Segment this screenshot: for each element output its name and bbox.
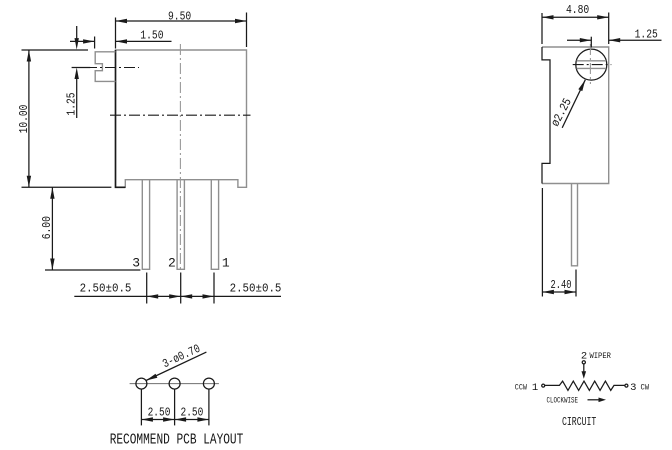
svg-text:2.50±0.5: 2.50±0.5 <box>80 281 132 295</box>
svg-text:10.00: 10.00 <box>17 105 31 134</box>
svg-text:CLOCKWISE: CLOCKWISE <box>547 396 579 406</box>
svg-text:4.80: 4.80 <box>566 3 589 17</box>
svg-text:3: 3 <box>630 382 636 394</box>
svg-text:2.40: 2.40 <box>551 278 572 292</box>
svg-text:2.50: 2.50 <box>181 405 204 419</box>
svg-text:3-ø0.70: 3-ø0.70 <box>160 342 202 371</box>
svg-text:2.50: 2.50 <box>148 405 171 419</box>
svg-text:1: 1 <box>532 382 538 394</box>
svg-text:1.50: 1.50 <box>140 29 163 43</box>
svg-text:6.00: 6.00 <box>40 216 54 239</box>
svg-text:1.25: 1.25 <box>65 92 79 115</box>
svg-text:CIRCUIT: CIRCUIT <box>562 415 596 429</box>
svg-text:ø2.25: ø2.25 <box>548 96 574 129</box>
svg-text:1: 1 <box>222 256 230 271</box>
svg-text:2.50±0.5: 2.50±0.5 <box>230 281 282 295</box>
svg-text:2: 2 <box>168 256 176 271</box>
svg-text:9.50: 9.50 <box>168 9 191 23</box>
svg-text:CCW: CCW <box>515 383 528 393</box>
svg-text:2: 2 <box>581 351 587 363</box>
svg-text:1.25: 1.25 <box>635 27 658 41</box>
svg-text:WIPER: WIPER <box>590 351 611 361</box>
svg-text:RECOMMEND PCB LAYOUT: RECOMMEND PCB LAYOUT <box>110 432 244 448</box>
svg-text:CW: CW <box>641 382 650 392</box>
svg-text:3: 3 <box>132 256 140 271</box>
